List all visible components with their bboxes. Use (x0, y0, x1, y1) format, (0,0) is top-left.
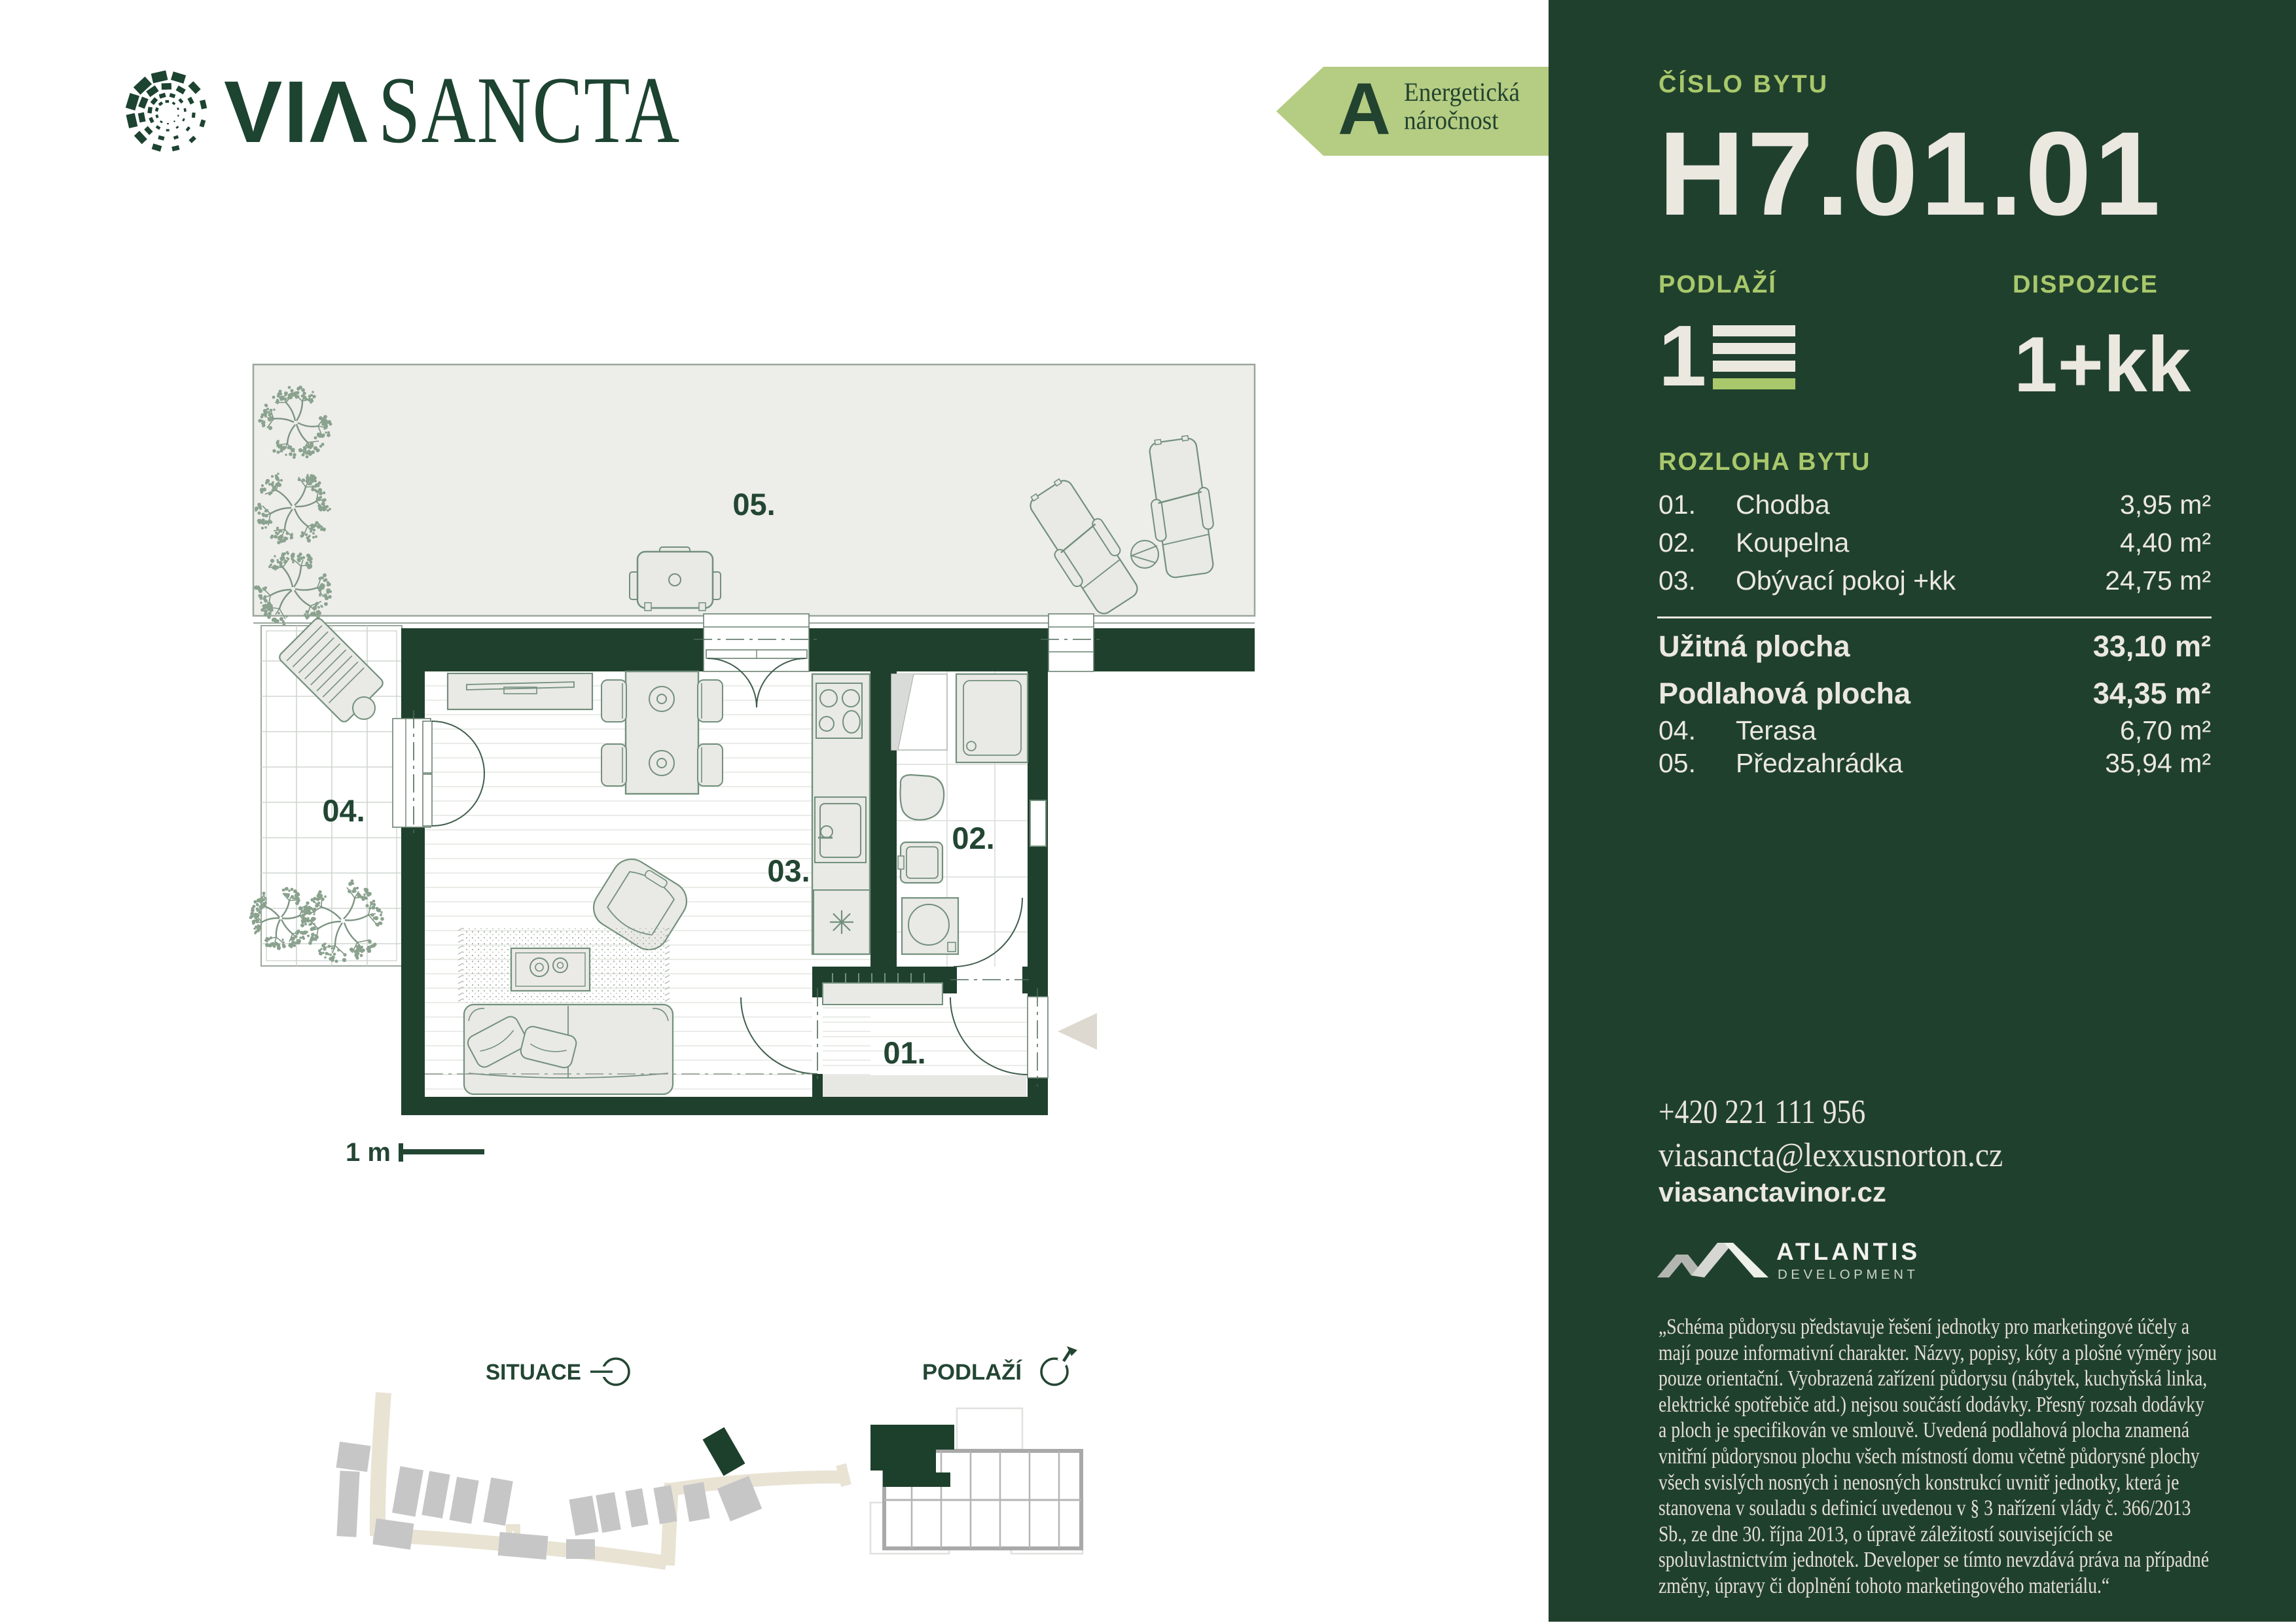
svg-text:04.: 04. (322, 793, 365, 828)
svg-text:02.: 02. (952, 821, 994, 855)
svg-text:1 m: 1 m (346, 1138, 391, 1167)
svg-text:05.: 05. (732, 487, 775, 522)
svg-text:01.: 01. (883, 1035, 925, 1070)
svg-text:SITUACE: SITUACE (486, 1360, 581, 1385)
svg-text:PODLAŽÍ: PODLAŽÍ (922, 1360, 1023, 1385)
svg-text:03.: 03. (767, 853, 810, 888)
